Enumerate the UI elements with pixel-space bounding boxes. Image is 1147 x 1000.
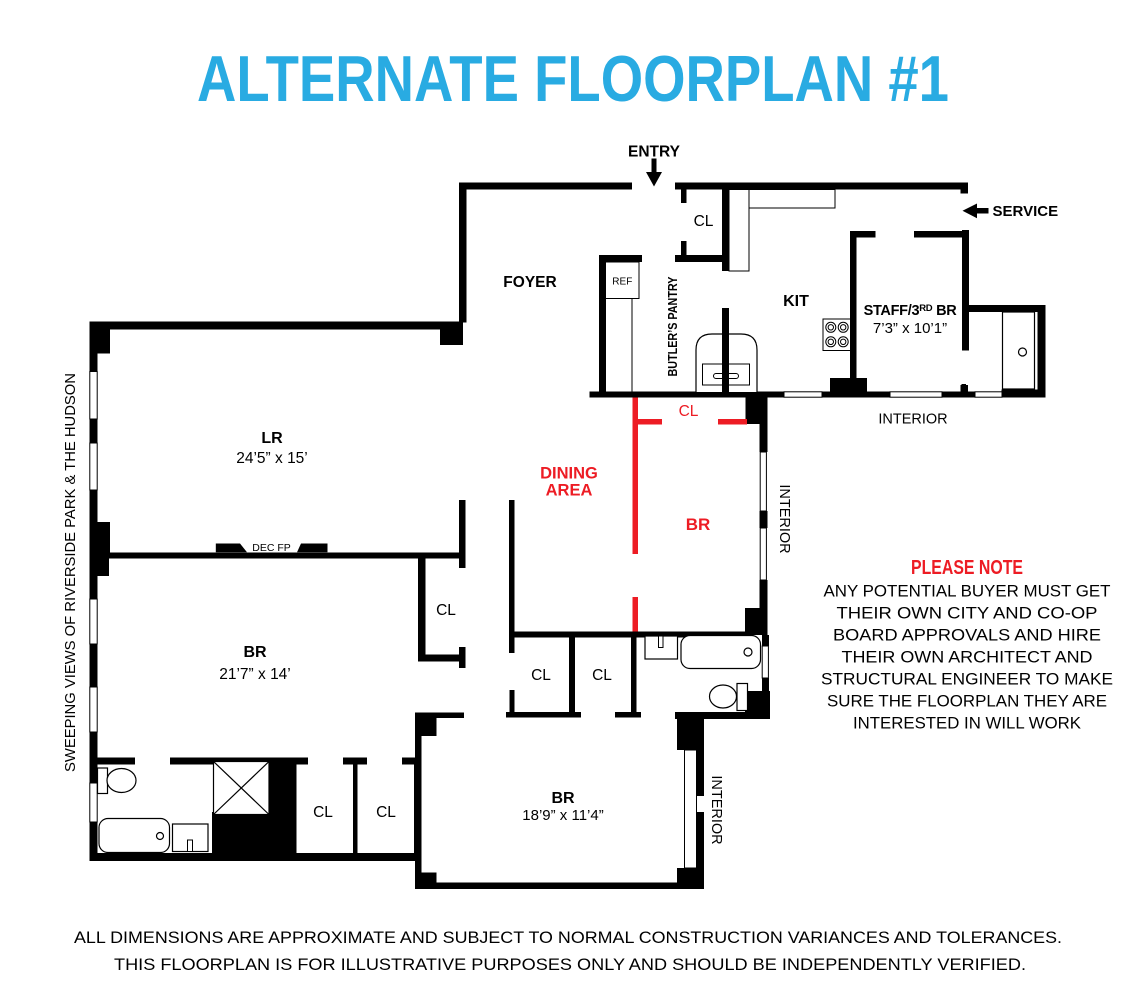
svg-text:18’9” x 11’4”: 18’9” x 11’4” (522, 807, 603, 824)
svg-text:BR: BR (686, 515, 711, 534)
svg-text:DEC FP: DEC FP (252, 542, 291, 554)
svg-text:CL: CL (313, 804, 333, 821)
svg-text:PLEASE NOTE: PLEASE NOTE (911, 557, 1023, 579)
svg-text:CL: CL (694, 213, 714, 230)
svg-text:BOARD APPROVALS AND HIRE: BOARD APPROVALS AND HIRE (833, 626, 1101, 645)
svg-text:CL: CL (436, 602, 456, 619)
svg-text:CL: CL (592, 667, 612, 684)
svg-text:21’7” x 14’: 21’7” x 14’ (219, 666, 291, 683)
svg-text:KIT: KIT (783, 293, 809, 310)
svg-text:SWEEPING VIEWS OF RIVERSIDE PA: SWEEPING VIEWS OF RIVERSIDE PARK & THE H… (62, 373, 79, 772)
svg-text:SURE THE FLOORPLAN THEY ARE: SURE THE FLOORPLAN THEY ARE (827, 691, 1107, 710)
svg-text:BR: BR (551, 790, 575, 807)
svg-text:INTERIOR: INTERIOR (776, 484, 792, 553)
svg-text:STRUCTURAL ENGINEER TO MAKE: STRUCTURAL ENGINEER TO MAKE (821, 669, 1113, 688)
svg-text:DINING: DINING (540, 465, 598, 483)
svg-text:THIS FLOORPLAN IS FOR ILLUSTRA: THIS FLOORPLAN IS FOR ILLUSTRATIVE PURPO… (114, 955, 1026, 974)
svg-text:FOYER: FOYER (503, 274, 556, 291)
svg-text:THEIR OWN CITY AND CO-OP: THEIR OWN CITY AND CO-OP (837, 604, 1098, 623)
svg-text:THEIR OWN ARCHITECT AND: THEIR OWN ARCHITECT AND (842, 648, 1093, 667)
svg-text:AREA: AREA (546, 482, 593, 500)
svg-text:LR: LR (261, 430, 283, 447)
svg-text:INTERIOR: INTERIOR (878, 412, 947, 428)
svg-text:ANY POTENTIAL BUYER MUST GET: ANY POTENTIAL BUYER MUST GET (824, 582, 1111, 601)
svg-text:CL: CL (679, 403, 699, 420)
svg-text:24’5” x 15’: 24’5” x 15’ (236, 450, 308, 467)
svg-text:ALL DIMENSIONS ARE APPROXIMATE: ALL DIMENSIONS ARE APPROXIMATE AND SUBJE… (74, 928, 1062, 947)
svg-text:CL: CL (376, 804, 396, 821)
svg-text:INTERIOR: INTERIOR (708, 775, 724, 844)
svg-text:ALTERNATE FLOORPLAN #1: ALTERNATE FLOORPLAN #1 (197, 42, 949, 115)
svg-text:BUTLER’S PANTRY: BUTLER’S PANTRY (665, 276, 680, 376)
svg-text:BR: BR (243, 644, 267, 661)
svg-text:REF: REF (612, 277, 632, 288)
svg-text:INTERESTED IN WILL WORK: INTERESTED IN WILL WORK (853, 713, 1082, 732)
svg-text:STAFF/3RD BR: STAFF/3RD BR (864, 303, 958, 319)
svg-text:7’3” x 10’1”: 7’3” x 10’1” (873, 320, 947, 337)
svg-text:ENTRY: ENTRY (628, 144, 681, 161)
svg-text:CL: CL (531, 667, 551, 684)
svg-text:SERVICE: SERVICE (993, 203, 1059, 220)
